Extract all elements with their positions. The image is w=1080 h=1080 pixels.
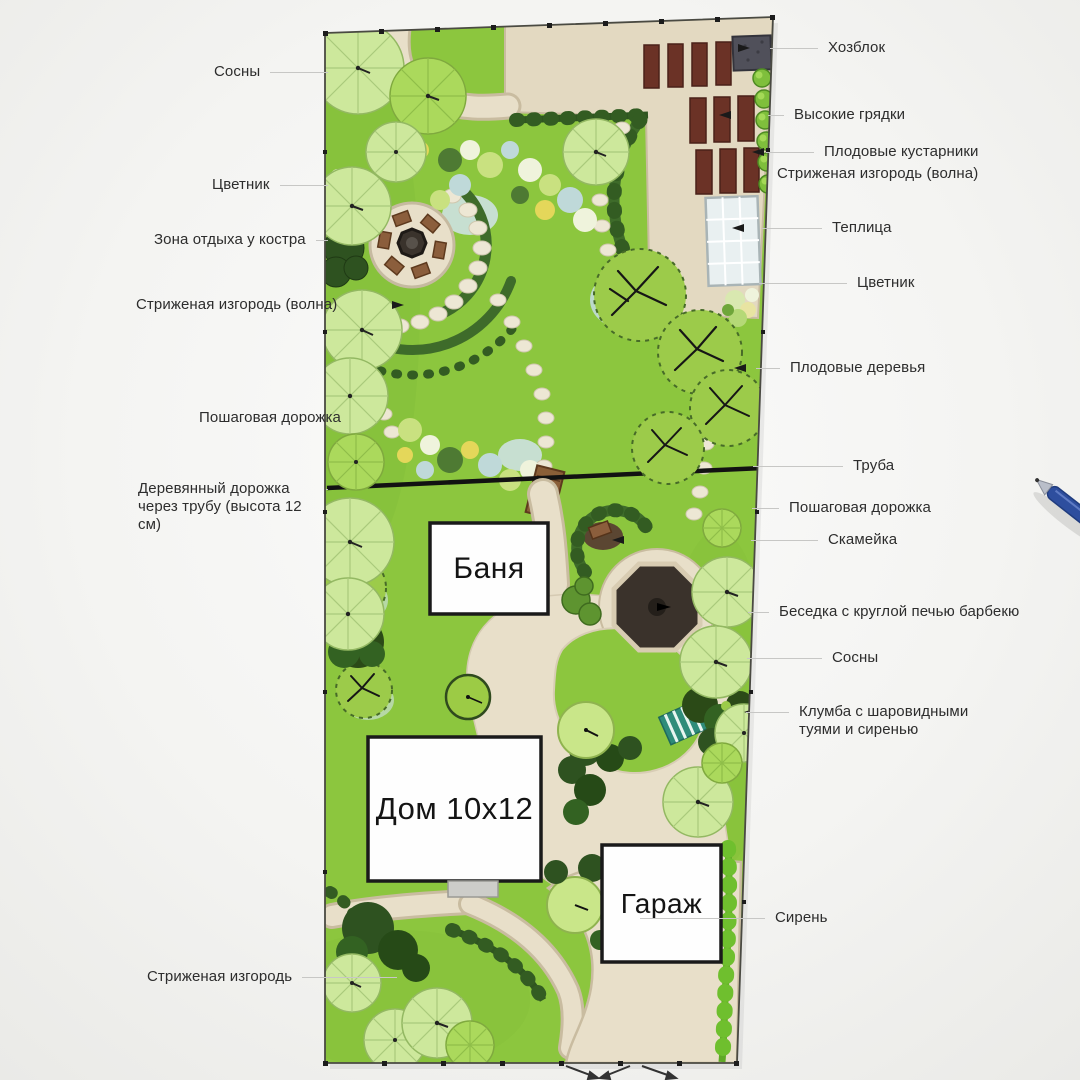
label-gazebo: Беседка с круглой печью барбекю <box>748 603 1019 621</box>
label-lilac: Сирень <box>640 909 828 927</box>
wave-hedge-top <box>516 115 648 120</box>
leader-line <box>756 368 780 369</box>
label-fruit-bushes: Плодовые кустарники <box>766 143 979 161</box>
garden-plan-canvas: Баня Дом 10х12 Гараж Сосны Цветник Зона … <box>0 0 1080 1080</box>
pen-photo <box>1024 473 1080 578</box>
leader-line <box>762 228 822 229</box>
leader-line <box>302 977 397 978</box>
leader-line <box>316 240 328 241</box>
leader-line <box>766 152 814 153</box>
leader-line <box>748 612 769 613</box>
house-label: Дом 10х12 <box>368 737 541 881</box>
gazebo-octagon <box>614 564 700 650</box>
label-trimmed-hedge: Стриженая изгородь <box>147 968 397 986</box>
leader-line <box>768 115 784 116</box>
label-flowerbed-right: Цветник <box>759 274 915 292</box>
young-tree-circle <box>446 675 490 719</box>
leader-line <box>751 540 818 541</box>
label-shed: Хозблок <box>770 39 885 57</box>
leader-line <box>270 72 328 73</box>
label-bench: Скамейка <box>751 531 897 549</box>
leader-line <box>326 489 328 490</box>
label-stepping-path-left: Пошаговая дорожка <box>199 409 328 427</box>
label-flowerbed-left: Цветник <box>212 176 328 194</box>
label-wave-hedge-left: Стриженая изгородь (волна) <box>136 296 328 314</box>
shed-square <box>732 35 771 70</box>
lilac-hedge <box>722 848 729 1062</box>
greenhouse <box>706 196 761 286</box>
label-wave-hedge-right: Стриженая изгородь (волна) <box>767 165 978 183</box>
label-stepping-path-right: Пошаговая дорожка <box>752 499 931 517</box>
bathhouse-label: Баня <box>430 523 548 614</box>
leader-line <box>770 48 818 49</box>
leader-line <box>747 658 822 659</box>
leader-line <box>280 185 328 186</box>
label-thuja-klumba: Клумба с шаровидными туями и сиренью <box>746 703 1004 739</box>
label-greenhouse: Теплица <box>762 219 892 237</box>
label-fruit-trees: Плодовые деревья <box>756 359 925 377</box>
leader-line <box>752 508 779 509</box>
leader-line <box>746 712 789 713</box>
label-raised-beds: Высокие грядки <box>768 106 905 124</box>
leader-line <box>753 466 843 467</box>
label-pipe: Труба <box>753 457 894 475</box>
garage-label: Гараж <box>602 845 721 962</box>
leader-line <box>640 918 765 919</box>
label-firepit-area: Зона отдыха у костра <box>154 231 328 249</box>
label-wooden-walkway: Деревянный дорожка через трубу (высота 1… <box>138 480 328 534</box>
leader-line <box>759 283 847 284</box>
label-pines-right: Сосны <box>747 649 878 667</box>
label-pines-left: Сосны <box>214 63 328 81</box>
kidney-tree <box>558 702 614 758</box>
house-porch <box>448 881 498 897</box>
